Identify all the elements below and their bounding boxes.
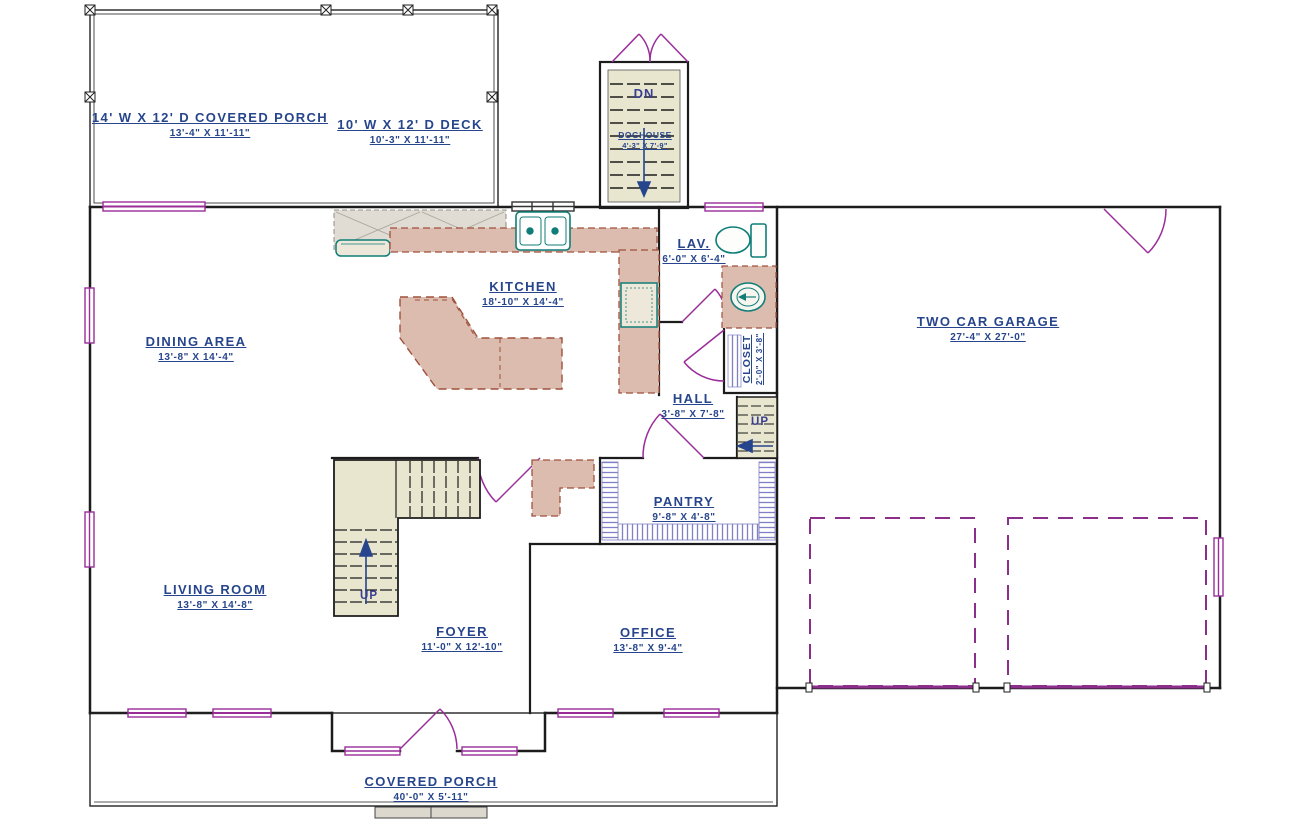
room-dims: 13'-8" X 14'-4" <box>146 351 247 364</box>
room-title: OFFICE <box>613 625 682 642</box>
porch-post-icon <box>487 5 497 15</box>
stair-tower <box>600 34 688 208</box>
stair-label-up-hall: UP <box>751 416 769 428</box>
porch-post-icon <box>85 5 95 15</box>
porch-post-icon <box>321 5 331 15</box>
window <box>664 709 719 717</box>
room-label-covered-porch-bottom: COVERED PORCH 40'-0" X 5'-11" <box>364 774 497 804</box>
room-dims: 18'-10" X 14'-4" <box>482 296 564 309</box>
room-dims: 13'-8" X 14'-8" <box>164 599 267 612</box>
door-swing-kitchen <box>478 458 540 502</box>
window <box>345 747 400 755</box>
room-title: HALL <box>661 391 724 408</box>
window <box>128 709 186 717</box>
room-title: TWO CAR GARAGE <box>917 314 1059 331</box>
door-swing-lav <box>682 289 727 322</box>
porch-posts <box>85 5 497 102</box>
vanity-sink-icon <box>731 283 765 311</box>
room-dims: 13'-8" X 9'-4" <box>613 642 682 655</box>
room-title: LAV. <box>662 236 725 253</box>
room-title: CLOSET <box>741 333 755 385</box>
room-title: DINING AREA <box>146 334 247 351</box>
room-dims: 6'-0" X 6'-4" <box>662 253 725 266</box>
room-title: COVERED PORCH <box>364 774 497 791</box>
room-dims: 9'-8" X 4'-8" <box>652 511 715 524</box>
room-label-closet: CLOSET 2'-0" X 3'-8" <box>741 333 765 385</box>
room-label-dining: DINING AREA 13'-8" X 14'-4" <box>146 334 247 364</box>
counter-lower-L <box>532 460 594 516</box>
room-dims: 27'-4" X 27'-0" <box>917 331 1059 344</box>
room-label-living: LIVING ROOM 13'-8" X 14'-8" <box>164 582 267 612</box>
door-swing-garage-service <box>1104 209 1166 253</box>
room-dims: 10'-3" X 11'-11" <box>337 134 483 147</box>
door-swing-closet <box>684 330 724 381</box>
room-label-hall: HALL 3'-8" X 7'-8" <box>661 391 724 421</box>
door-swing-front-entry <box>400 709 457 749</box>
stair-label-up-foyer: UP <box>360 590 378 602</box>
window <box>213 709 271 717</box>
range-icon <box>336 240 390 256</box>
room-dims: 2'-0" X 3'-8" <box>755 333 765 385</box>
tower-double-door <box>612 34 688 62</box>
room-title: LIVING ROOM <box>164 582 267 599</box>
porch-top-outline <box>90 10 498 207</box>
room-title: FOYER <box>421 624 502 641</box>
stair-label-dn: DN <box>634 86 655 101</box>
floor-plan-canvas: 14' W X 12' D COVERED PORCH 13'-4" X 11'… <box>0 0 1309 820</box>
room-label-office: OFFICE 13'-8" X 9'-4" <box>613 625 682 655</box>
refrigerator-icon <box>621 283 657 327</box>
porch-post-icon <box>403 5 413 15</box>
garage-doors <box>806 683 1210 692</box>
room-label-pantry: PANTRY 9'-8" X 4'-8" <box>652 494 715 524</box>
porch-post-icon <box>85 92 95 102</box>
window <box>705 203 763 211</box>
kitchen-sink-icon <box>516 212 570 250</box>
porch-post-icon <box>487 92 497 102</box>
room-title: DOGHOUSE <box>618 130 672 141</box>
room-dims: 13'-4" X 11'-11" <box>92 127 328 140</box>
room-title: KITCHEN <box>482 279 564 296</box>
window <box>558 709 613 717</box>
garage-bay-outline <box>810 518 975 686</box>
kitchen-sink-window <box>512 202 574 211</box>
room-label-lav: LAV. 6'-0" X 6'-4" <box>662 236 725 266</box>
window <box>85 288 94 343</box>
room-label-covered-porch-top: 14' W X 12' D COVERED PORCH 13'-4" X 11'… <box>92 110 328 140</box>
room-dims: 11'-0" X 12'-10" <box>421 641 502 654</box>
window <box>85 512 94 567</box>
room-dims: 4'-3" X 7'-9" <box>618 141 672 151</box>
garage-bay-outline <box>1008 518 1206 686</box>
room-label-kitchen: KITCHEN 18'-10" X 14'-4" <box>482 279 564 309</box>
kitchen-island <box>400 297 562 389</box>
room-dims: 40'-0" X 5'-11" <box>364 791 497 804</box>
room-label-doghouse: DOGHOUSE 4'-3" X 7'-9" <box>618 130 672 151</box>
garage-ceiling-dashed <box>810 518 1206 686</box>
foyer-staircase <box>334 460 480 616</box>
room-label-garage: TWO CAR GARAGE 27'-4" X 27'-0" <box>917 314 1059 344</box>
closet-rod <box>728 335 741 387</box>
window <box>103 202 205 211</box>
room-title: 10' W X 12' D DECK <box>337 117 483 134</box>
window <box>462 747 517 755</box>
room-title: PANTRY <box>652 494 715 511</box>
room-dims: 3'-8" X 7'-8" <box>661 408 724 421</box>
window <box>1214 538 1223 596</box>
room-label-foyer: FOYER 11'-0" X 12'-10" <box>421 624 502 654</box>
room-title: 14' W X 12' D COVERED PORCH <box>92 110 328 127</box>
room-label-deck: 10' W X 12' D DECK 10'-3" X 11'-11" <box>337 117 483 147</box>
